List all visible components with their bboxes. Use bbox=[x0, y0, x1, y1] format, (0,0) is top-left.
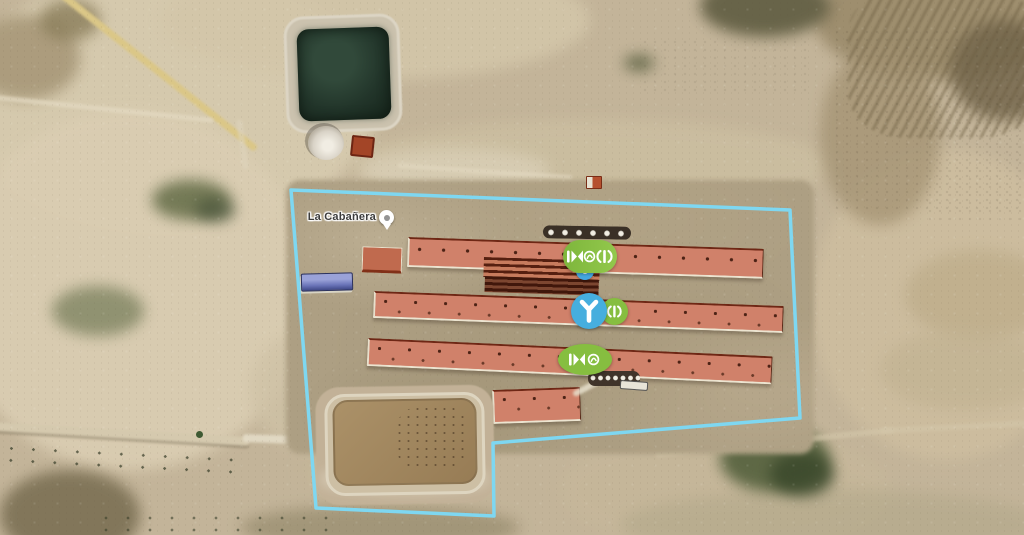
satellite-map[interactable]: La Cabañera bbox=[0, 0, 1024, 535]
fan-marker-ellipse[interactable] bbox=[558, 344, 612, 375]
place-label[interactable]: La Cabañera bbox=[298, 211, 376, 223]
fan-marker-pill[interactable] bbox=[563, 240, 617, 273]
terrain-detail bbox=[578, 251, 583, 263]
place-label-group[interactable]: La Cabañera bbox=[298, 208, 398, 234]
water-pipe-icon bbox=[571, 293, 607, 329]
terrain-detail bbox=[603, 250, 606, 263]
barn-4 bbox=[492, 387, 581, 424]
terrain-detail bbox=[589, 355, 599, 365]
terrain-detail bbox=[585, 252, 595, 262]
terrain-detail bbox=[582, 302, 596, 321]
blue-roof-building bbox=[301, 272, 353, 291]
terrain-detail bbox=[383, 224, 391, 230]
water-reservoir bbox=[296, 26, 391, 121]
lagoon-specks bbox=[395, 405, 470, 471]
terrain-detail bbox=[572, 251, 578, 263]
trailer bbox=[620, 380, 649, 391]
terrain-detail bbox=[569, 354, 572, 366]
terrain-detail bbox=[618, 307, 621, 317]
fan-icon bbox=[558, 344, 612, 375]
terrain-detail bbox=[609, 251, 612, 262]
place-pin-icon[interactable] bbox=[379, 210, 394, 225]
marker-cluster-bottom[interactable] bbox=[558, 344, 612, 375]
terrain-detail bbox=[597, 251, 600, 262]
airflow-icon bbox=[597, 250, 611, 263]
small-hut bbox=[586, 176, 602, 189]
terrain-detail bbox=[608, 307, 611, 317]
terrain-detail bbox=[567, 251, 583, 263]
marker-cluster-middle[interactable] bbox=[571, 293, 629, 330]
terrain-detail bbox=[587, 255, 592, 258]
marker-cluster-top[interactable] bbox=[563, 240, 617, 280]
terrain-detail bbox=[591, 358, 596, 361]
red-shed bbox=[350, 135, 375, 158]
farm-house bbox=[362, 246, 403, 273]
circulation-fan-icon bbox=[589, 355, 599, 365]
feed-bins-row-top bbox=[543, 225, 631, 240]
fan-icon bbox=[563, 240, 617, 273]
terrain-detail bbox=[574, 354, 580, 366]
circulation-fan-icon bbox=[585, 252, 595, 262]
terrain-detail bbox=[613, 306, 615, 318]
terrain-detail bbox=[567, 251, 570, 263]
water-pipe-marker[interactable] bbox=[571, 293, 607, 329]
terrain-detail bbox=[569, 354, 585, 366]
terrain-detail bbox=[580, 354, 585, 366]
terrain-detail bbox=[384, 215, 390, 221]
silo-tank bbox=[308, 126, 344, 160]
